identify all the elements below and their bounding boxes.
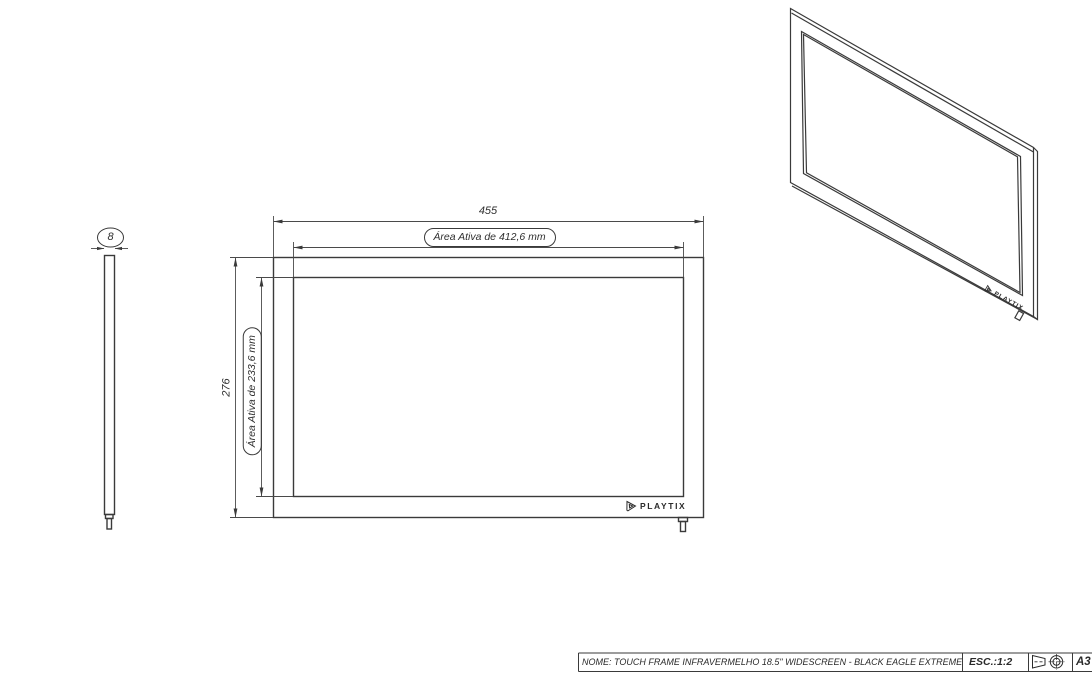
drawing-linework <box>0 0 1092 674</box>
active-height-capsule: Área Ativa de 233,6 mm <box>242 327 261 455</box>
dimension-lines <box>230 216 704 518</box>
front-width-dim-label: 455 <box>458 205 518 217</box>
playtix-logo-icon <box>625 500 637 512</box>
title-block-scale: ESC.:1:2 <box>969 653 1025 671</box>
active-height-label: Área Ativa de 233,6 mm <box>246 335 258 447</box>
front-view-outline <box>274 258 704 532</box>
dimension-arrowheads <box>234 220 704 518</box>
isometric-view-outline <box>791 9 1038 321</box>
front-view-logo: PLAYTIX <box>625 500 686 512</box>
side-view-outline <box>91 228 128 529</box>
front-view-logo-text: PLAYTIX <box>640 501 686 510</box>
title-block-name: NOME: TOUCH FRAME INFRAVERMELHO 18.5" WI… <box>582 653 958 671</box>
active-width-label: Área Ativa de 412,6 mm <box>433 231 545 243</box>
side-thickness-dim-label: 8 <box>98 231 123 243</box>
title-block-sheet-size: A3 <box>1076 653 1092 671</box>
drawing-sheet: 8 455 Área Ativa de 412,6 mm 276 Área At… <box>0 0 1092 674</box>
first-angle-projection-icon <box>1032 655 1070 669</box>
active-width-capsule: Área Ativa de 412,6 mm <box>424 228 556 247</box>
front-height-dim-label: 276 <box>221 368 234 408</box>
